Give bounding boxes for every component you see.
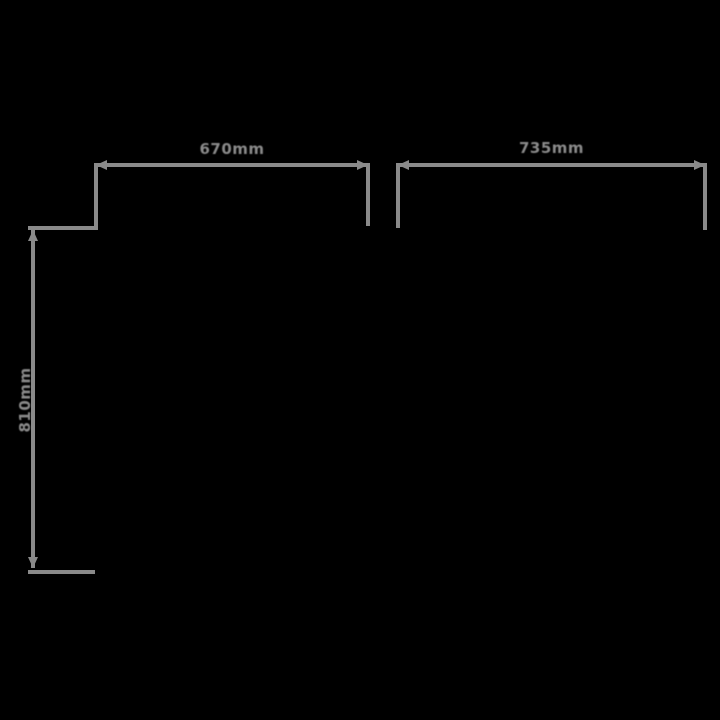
dimension-line: [96, 163, 368, 167]
arrow-down-icon: [28, 557, 38, 568]
extension-line: [366, 163, 370, 226]
dimension-line: [398, 163, 705, 167]
dimension-diagram: 670mm 735mm 810mm: [0, 0, 720, 720]
dimension-label-top-right: 735mm: [398, 139, 705, 157]
arrow-up-icon: [28, 230, 38, 241]
dimension-line: [31, 230, 35, 568]
extension-line: [28, 570, 95, 574]
extension-line: [703, 163, 707, 230]
extension-line: [396, 163, 400, 228]
extension-line: [28, 226, 97, 230]
dimension-label-top-left: 670mm: [96, 140, 368, 158]
extension-line: [94, 163, 98, 230]
